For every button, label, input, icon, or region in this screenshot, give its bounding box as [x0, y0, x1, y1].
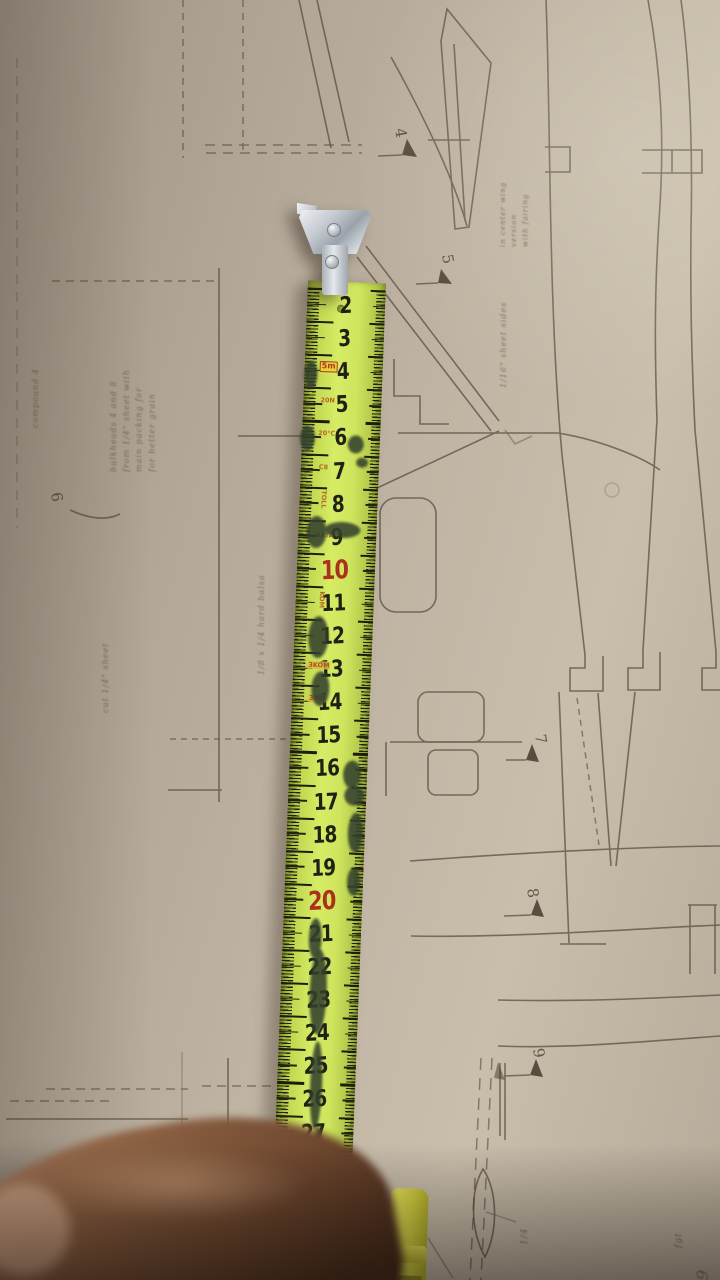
hook-rivet	[327, 223, 341, 237]
tape-cm-cell: 21	[282, 917, 361, 953]
tape-case	[289, 1182, 434, 1280]
hook-rivet	[325, 255, 339, 269]
tape-side-mark: 3KOM	[307, 661, 331, 670]
tape-cm-cell: 14	[291, 685, 370, 721]
tape-number: 19	[311, 855, 335, 882]
tape-side-mark: 20N	[320, 396, 335, 405]
photo-tape-measure-on-plan: bulkheads 4 and 8 from 1/4" sheet with m…	[0, 0, 720, 1280]
tape-number: 5	[335, 392, 347, 419]
handwritten-note: 1/4	[518, 1205, 538, 1245]
tape-number: 8	[332, 491, 344, 518]
tape-cm-cell: 10	[296, 553, 375, 589]
tape-number: 20	[308, 886, 336, 917]
tape-number: 16	[315, 755, 339, 782]
handwritten-note: 1/8 x 1/4 hard balsa	[256, 505, 280, 675]
tape-number: 10	[321, 555, 349, 586]
handwritten-note: cut 1/4" sheet	[100, 588, 126, 713]
tape-number: 17	[314, 788, 338, 815]
tape-number: 2	[339, 293, 351, 320]
handwritten-note: in center wing version with fairing	[498, 152, 538, 247]
tape-side-mark: KOM	[317, 591, 326, 608]
tape-number: 15	[316, 722, 340, 749]
tape-cm-cell: 15	[290, 718, 369, 754]
tape-number: 4	[337, 359, 349, 386]
handwritten-note: compound 4	[30, 300, 46, 428]
handwritten-note: fgt	[672, 1212, 692, 1248]
tape-number: 7	[333, 458, 345, 485]
tape-side-mark: 20°C	[318, 429, 335, 438]
tape-side-mark: 5m	[320, 361, 338, 372]
tape-cm-cell: 11	[295, 586, 374, 622]
tape-number: 3	[338, 326, 350, 353]
tape-cm-cell: 5	[303, 388, 382, 424]
tape-number: 6	[334, 425, 346, 452]
tape-cm-cell: 3	[305, 322, 384, 358]
tape-side-mark: TOLL	[319, 490, 328, 509]
handwritten-note: 9	[690, 1252, 714, 1280]
handwritten-note: 1/16" sheet sides	[498, 228, 524, 388]
tape-cm-cell: 12	[294, 619, 373, 655]
hook-tongue	[322, 245, 348, 295]
handwritten-note: bulkheads 4 and 8 from 1/4" sheet with m…	[108, 322, 188, 472]
tape-cm-cell: 13	[292, 652, 371, 688]
tape-side-mark: CⅡ	[319, 463, 328, 471]
tape-end-hook	[299, 203, 371, 295]
tape-number: 18	[312, 822, 336, 849]
tape-cm-cell: 7	[300, 454, 379, 490]
